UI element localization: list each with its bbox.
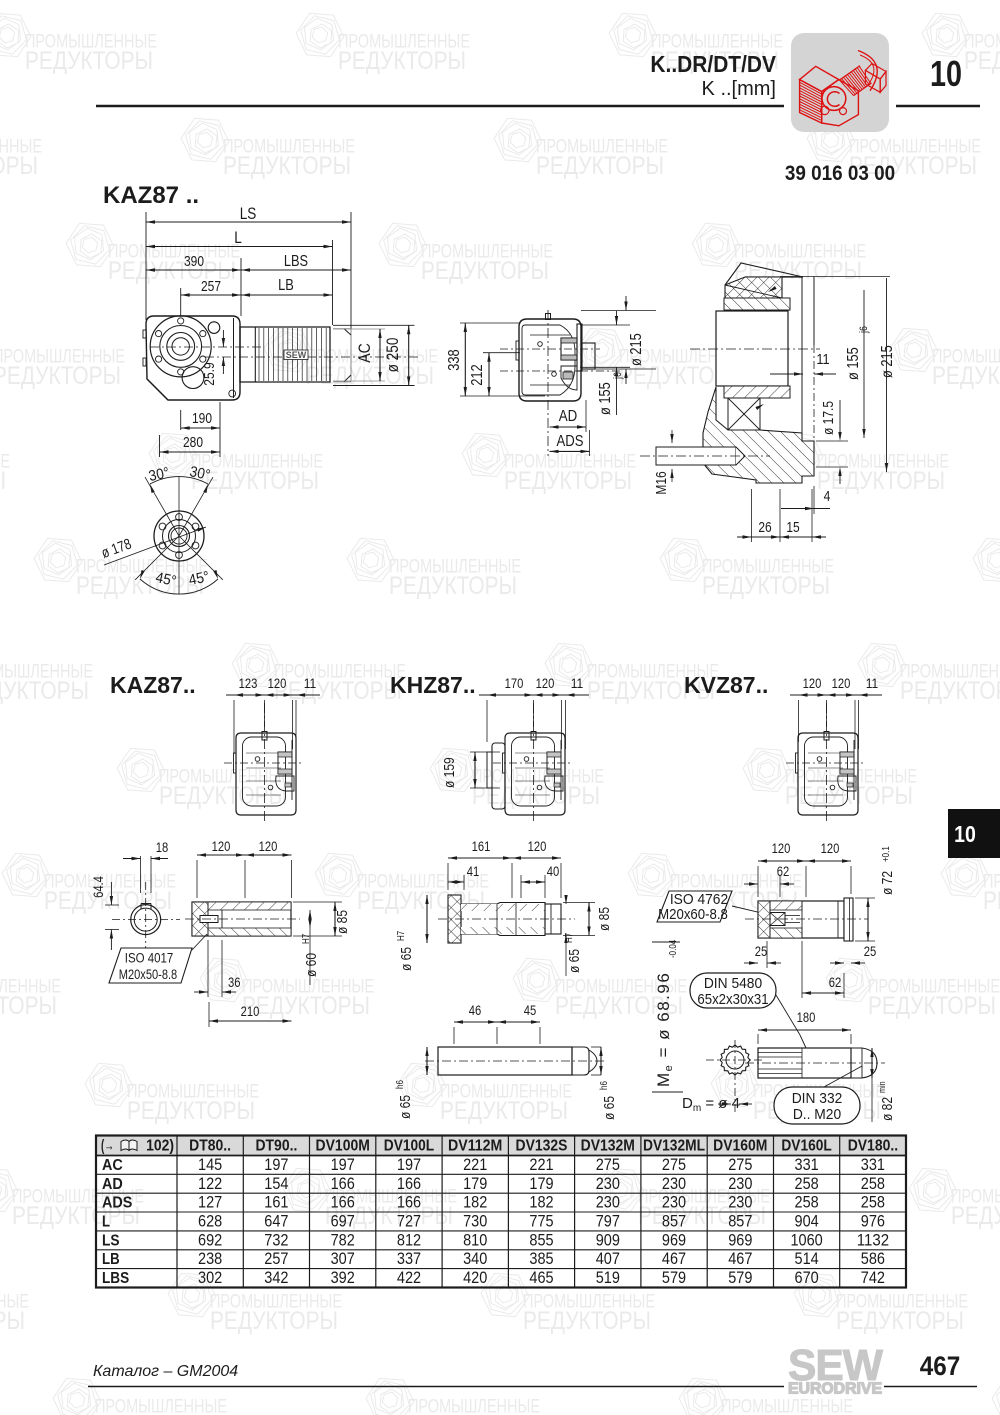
svg-text:AD: AD — [102, 1176, 123, 1193]
svg-text:min: min — [877, 1081, 887, 1093]
svg-text:210: 210 — [241, 1003, 260, 1019]
svg-text:586: 586 — [861, 1250, 885, 1268]
svg-text:46: 46 — [469, 1002, 482, 1018]
svg-text:179: 179 — [463, 1175, 487, 1193]
svg-text:ø 215: ø 215 — [628, 333, 645, 366]
svg-text:25.9: 25.9 — [201, 362, 218, 385]
svg-text:62: 62 — [829, 974, 842, 990]
svg-text:РЕДУКТОРЫ: РЕДУКТОРЫ — [76, 572, 204, 600]
svg-text:H7: H7 — [564, 932, 575, 943]
svg-text:238: 238 — [198, 1250, 222, 1268]
svg-text:11: 11 — [304, 675, 317, 691]
svg-text:909: 909 — [596, 1231, 620, 1249]
svg-text:РЕДУКТОРЫ: РЕДУКТОРЫ — [210, 1307, 338, 1335]
svg-text:307: 307 — [331, 1250, 355, 1268]
svg-text:190: 190 — [192, 410, 212, 427]
svg-text:DT90..: DT90.. — [255, 1138, 297, 1155]
svg-text:M20x50-8.8: M20x50-8.8 — [119, 967, 177, 982]
svg-text:775: 775 — [529, 1213, 553, 1231]
svg-text:742: 742 — [861, 1269, 885, 1287]
svg-text:KAZ87 ..: KAZ87 .. — [103, 182, 199, 209]
svg-text:467: 467 — [920, 1351, 961, 1381]
svg-text:РЕДУКТОРЫ: РЕДУКТОРЫ — [0, 152, 38, 180]
svg-text:40: 40 — [547, 863, 560, 879]
svg-text:62: 62 — [777, 863, 790, 879]
svg-text:579: 579 — [662, 1269, 686, 1287]
svg-text:LS: LS — [240, 204, 257, 223]
svg-text:ø 155: ø 155 — [597, 382, 614, 415]
svg-text:M20x60-8.8: M20x60-8.8 — [658, 906, 728, 923]
svg-text:230: 230 — [662, 1175, 686, 1193]
svg-text:K ..[mm]: K ..[mm] — [702, 78, 776, 100]
svg-text:579: 579 — [728, 1269, 752, 1287]
svg-text:230: 230 — [662, 1194, 686, 1212]
svg-text:976: 976 — [861, 1213, 885, 1231]
svg-text:ø 250: ø 250 — [383, 338, 402, 373]
svg-text:302: 302 — [198, 1269, 222, 1287]
svg-text:166: 166 — [331, 1175, 355, 1193]
svg-text:812: 812 — [397, 1231, 421, 1249]
svg-text:SEW: SEW — [286, 350, 307, 360]
svg-text:161: 161 — [264, 1194, 288, 1212]
svg-text:258: 258 — [795, 1175, 819, 1193]
svg-text:РЕДУКТОРЫ: РЕДУКТОРЫ — [932, 362, 1000, 390]
svg-text:166: 166 — [397, 1194, 421, 1212]
svg-text:DV160L: DV160L — [781, 1138, 831, 1155]
svg-text:DIN 332: DIN 332 — [792, 1090, 843, 1107]
svg-text:331: 331 — [861, 1156, 885, 1174]
svg-text:ø 85: ø 85 — [334, 910, 351, 934]
svg-text:465: 465 — [529, 1269, 553, 1287]
svg-text:Каталог – GM2004: Каталог – GM2004 — [93, 1363, 238, 1380]
svg-text:275: 275 — [596, 1156, 620, 1174]
svg-text:h6: h6 — [599, 1081, 610, 1090]
svg-text:154: 154 — [264, 1175, 288, 1193]
svg-text:РЕДУКТОРЫ: РЕДУКТОРЫ — [338, 47, 466, 75]
svg-text:857: 857 — [728, 1213, 752, 1231]
svg-text:385: 385 — [529, 1250, 553, 1268]
svg-text:РЕДУКТОРЫ: РЕДУКТОРЫ — [0, 992, 57, 1020]
svg-text:-0.04: -0.04 — [668, 939, 679, 958]
svg-text:ø 155: ø 155 — [845, 347, 862, 380]
svg-text:AD: AD — [559, 408, 578, 425]
svg-text:904: 904 — [795, 1213, 819, 1231]
svg-text:DV132ML: DV132ML — [643, 1138, 705, 1155]
svg-text:18: 18 — [156, 839, 169, 855]
svg-text:969: 969 — [662, 1231, 686, 1249]
svg-text:AC: AC — [355, 343, 374, 363]
svg-text:KAZ87..: KAZ87.. — [110, 672, 196, 698]
svg-text:857: 857 — [662, 1213, 686, 1231]
svg-text:145: 145 — [198, 1156, 222, 1174]
svg-text:РЕДУКТОРЫ: РЕДУКТОРЫ — [421, 257, 549, 285]
svg-text:DV160M: DV160M — [713, 1138, 767, 1155]
svg-text:KHZ87..: KHZ87.. — [390, 672, 476, 698]
svg-text:182: 182 — [529, 1194, 553, 1212]
svg-text:РЕДУКТОРЫ: РЕДУКТОРЫ — [900, 677, 1000, 705]
svg-text:LS: LS — [102, 1232, 120, 1249]
svg-text:D.. M20: D.. M20 — [793, 1106, 841, 1123]
svg-text:692: 692 — [198, 1231, 222, 1249]
svg-text:782: 782 — [331, 1231, 355, 1249]
svg-text:РЕДУКТОРЫ: РЕДУКТОРЫ — [223, 152, 351, 180]
svg-text:L: L — [102, 1214, 110, 1231]
svg-text:197: 197 — [331, 1156, 355, 1174]
svg-text:519: 519 — [596, 1269, 620, 1287]
svg-text:257: 257 — [264, 1250, 288, 1268]
svg-text:25: 25 — [864, 943, 877, 959]
svg-text:120: 120 — [772, 840, 791, 856]
svg-text:K..DR/DT/DV: K..DR/DT/DV — [650, 51, 776, 77]
svg-text:ADS: ADS — [557, 433, 584, 450]
svg-text:230: 230 — [728, 1175, 752, 1193]
svg-text:102): 102) — [146, 1138, 174, 1155]
svg-text:Dm = ø 4: Dm = ø 4 — [682, 1095, 740, 1114]
svg-text:DV100L: DV100L — [384, 1138, 434, 1155]
svg-text:25: 25 — [755, 943, 768, 959]
svg-text:420: 420 — [463, 1269, 487, 1287]
svg-text:РЕДУКТОРЫ: РЕДУКТОРЫ — [274, 677, 402, 705]
svg-text:H7: H7 — [301, 933, 312, 944]
svg-text:EURODRIVE: EURODRIVE — [788, 1381, 882, 1398]
svg-text:342: 342 — [264, 1269, 288, 1287]
svg-text:123: 123 — [239, 675, 258, 691]
svg-text:ø 65: ø 65 — [601, 1096, 618, 1120]
svg-text:179: 179 — [529, 1175, 553, 1193]
svg-text:514: 514 — [795, 1250, 819, 1268]
svg-text:РЕДУКТОРЫ: РЕДУКТОРЫ — [440, 1097, 568, 1125]
svg-text:340: 340 — [463, 1250, 487, 1268]
svg-text:275: 275 — [728, 1156, 752, 1174]
svg-text:197: 197 — [264, 1156, 288, 1174]
svg-text:65x2x30x31: 65x2x30x31 — [697, 991, 768, 1008]
svg-text:180: 180 — [797, 1009, 816, 1025]
svg-text:15: 15 — [786, 519, 799, 536]
svg-text:1060: 1060 — [790, 1231, 822, 1249]
svg-text:670: 670 — [795, 1269, 819, 1287]
svg-text:ø 215: ø 215 — [879, 345, 896, 378]
svg-text:РЕДУКТОРЫ: РЕДУКТОРЫ — [951, 1202, 1000, 1230]
svg-text:45: 45 — [524, 1002, 537, 1018]
svg-text:1132: 1132 — [857, 1231, 889, 1249]
svg-text:DT80..: DT80.. — [189, 1138, 231, 1155]
svg-text:РЕДУКТОРЫ: РЕДУКТОРЫ — [127, 1097, 255, 1125]
svg-text:j6: j6 — [858, 326, 870, 334]
svg-text:732: 732 — [264, 1231, 288, 1249]
svg-text:64.4: 64.4 — [90, 876, 106, 898]
svg-text:392: 392 — [331, 1269, 355, 1287]
svg-text:РЕДУКТОРЫ: РЕДУКТОРЫ — [702, 572, 830, 600]
svg-text:182: 182 — [463, 1194, 487, 1212]
svg-text:26: 26 — [758, 519, 771, 536]
svg-text:LB: LB — [278, 277, 294, 294]
svg-text:727: 727 — [397, 1213, 421, 1231]
svg-text:120: 120 — [803, 675, 822, 691]
svg-text:LBS: LBS — [102, 1270, 129, 1287]
svg-text:257: 257 — [201, 278, 221, 295]
svg-text:422: 422 — [397, 1269, 421, 1287]
svg-text:ADS: ADS — [102, 1195, 133, 1212]
svg-text:39 016 03 00: 39 016 03 00 — [785, 162, 895, 185]
svg-text:РЕДУКТОРЫ: РЕДУКТОРЫ — [817, 467, 945, 495]
svg-text:230: 230 — [596, 1175, 620, 1193]
svg-text:120: 120 — [268, 675, 287, 691]
svg-text:РЕДУКТОРЫ: РЕДУКТОРЫ — [0, 362, 121, 390]
svg-text:36: 36 — [228, 974, 241, 990]
svg-text:166: 166 — [331, 1194, 355, 1212]
svg-text:10: 10 — [954, 821, 976, 847]
svg-text:РЕДУКТОРЫ: РЕДУКТОРЫ — [504, 467, 632, 495]
svg-text:ø 82: ø 82 — [879, 1097, 896, 1121]
svg-text:LBS: LBS — [284, 253, 308, 270]
svg-text:197: 197 — [397, 1156, 421, 1174]
svg-text:DV180..: DV180.. — [848, 1138, 898, 1155]
svg-text:467: 467 — [662, 1250, 686, 1268]
svg-text:j6: j6 — [612, 372, 624, 380]
svg-text:+0.1: +0.1 — [881, 846, 892, 862]
svg-text:РЕДУКТОРЫ: РЕДУКТОРЫ — [868, 992, 996, 1020]
svg-text:212: 212 — [469, 364, 486, 385]
svg-text:L: L — [234, 228, 242, 247]
svg-text:ø 159: ø 159 — [441, 757, 458, 788]
svg-text:390: 390 — [184, 253, 204, 270]
svg-text:KVZ87..: KVZ87.. — [684, 672, 768, 698]
svg-text:275: 275 — [662, 1156, 686, 1174]
svg-text:122: 122 — [198, 1175, 222, 1193]
svg-text:797: 797 — [596, 1213, 620, 1231]
svg-text:DIN 5480: DIN 5480 — [704, 975, 762, 992]
svg-text:337: 337 — [397, 1250, 421, 1268]
svg-text:РЕДУКТОРЫ: РЕДУКТОРЫ — [983, 887, 1000, 915]
svg-text:M16: M16 — [653, 471, 670, 494]
svg-text:628: 628 — [198, 1213, 222, 1231]
svg-text:РЕДУКТОРЫ: РЕДУКТОРЫ — [0, 677, 89, 705]
svg-text:РЕДУКТОРЫ: РЕДУКТОРЫ — [242, 992, 370, 1020]
svg-text:331: 331 — [795, 1156, 819, 1174]
svg-text:РЕДУКТОРЫ: РЕДУКТОРЫ — [523, 1307, 651, 1335]
svg-text:11: 11 — [816, 351, 829, 368]
svg-text:120: 120 — [528, 838, 547, 854]
svg-text:РЕДУКТОРЫ: РЕДУКТОРЫ — [25, 47, 153, 75]
svg-text:РЕДУКТОРЫ: РЕДУКТОРЫ — [0, 1307, 25, 1335]
svg-text:ø 85: ø 85 — [596, 907, 613, 931]
svg-text:ø 60: ø 60 — [303, 953, 320, 977]
svg-text:120: 120 — [832, 675, 851, 691]
svg-text:ø 65: ø 65 — [397, 1095, 414, 1119]
svg-text:338: 338 — [446, 349, 463, 370]
svg-text:41: 41 — [467, 863, 480, 879]
svg-text:120: 120 — [821, 840, 840, 856]
svg-text:ISO 4017: ISO 4017 — [125, 951, 174, 966]
svg-text:4: 4 — [824, 488, 831, 505]
svg-text:407: 407 — [596, 1250, 620, 1268]
svg-text:258: 258 — [795, 1194, 819, 1212]
svg-text:258: 258 — [861, 1175, 885, 1193]
svg-text:ø 72: ø 72 — [879, 871, 896, 895]
svg-text:РЕДУКТОРЫ: РЕДУКТОРЫ — [0, 467, 6, 495]
svg-text:DV112M: DV112M — [448, 1138, 502, 1155]
svg-text:AC: AC — [102, 1157, 123, 1174]
svg-text:647: 647 — [264, 1213, 288, 1231]
svg-text:166: 166 — [397, 1175, 421, 1193]
svg-text:230: 230 — [728, 1194, 752, 1212]
svg-text:H7: H7 — [396, 930, 407, 941]
svg-text:120: 120 — [536, 675, 555, 691]
svg-text:DV132M: DV132M — [581, 1138, 635, 1155]
svg-text:DV100M: DV100M — [316, 1138, 370, 1155]
svg-text:h6: h6 — [395, 1080, 406, 1089]
svg-text:11: 11 — [571, 675, 584, 691]
svg-text:10: 10 — [930, 53, 962, 94]
svg-text:11: 11 — [866, 675, 879, 691]
svg-text:221: 221 — [463, 1156, 487, 1174]
svg-text:467: 467 — [728, 1250, 752, 1268]
svg-text:280: 280 — [183, 434, 203, 451]
svg-text:697: 697 — [331, 1213, 355, 1231]
svg-text:DV132S: DV132S — [516, 1138, 568, 1155]
svg-text:230: 230 — [596, 1194, 620, 1212]
svg-text:(→: (→ — [101, 1138, 114, 1155]
svg-text:221: 221 — [529, 1156, 553, 1174]
svg-text:730: 730 — [463, 1213, 487, 1231]
svg-text:120: 120 — [212, 838, 231, 854]
svg-text:РЕДУКТОРЫ: РЕДУКТОРЫ — [389, 572, 517, 600]
svg-text:РЕДУКТОРЫ: РЕДУКТОРЫ — [836, 1307, 964, 1335]
svg-text:969: 969 — [728, 1231, 752, 1249]
svg-text:РЕДУКТОРЫ: РЕДУКТОРЫ — [964, 47, 1000, 75]
svg-text:127: 127 — [198, 1194, 222, 1212]
svg-text:РЕДУКТОРЫ: РЕДУКТОРЫ — [536, 152, 664, 180]
svg-text:161: 161 — [472, 838, 491, 854]
svg-text:ø 17.5: ø 17.5 — [820, 401, 837, 435]
svg-text:170: 170 — [505, 675, 524, 691]
svg-text:258: 258 — [861, 1194, 885, 1212]
svg-text:ø 65: ø 65 — [398, 947, 415, 971]
svg-text:ø 65: ø 65 — [566, 949, 583, 973]
svg-text:LB: LB — [102, 1251, 120, 1268]
svg-text:855: 855 — [529, 1231, 553, 1249]
svg-text:120: 120 — [259, 838, 278, 854]
svg-text:810: 810 — [463, 1231, 487, 1249]
